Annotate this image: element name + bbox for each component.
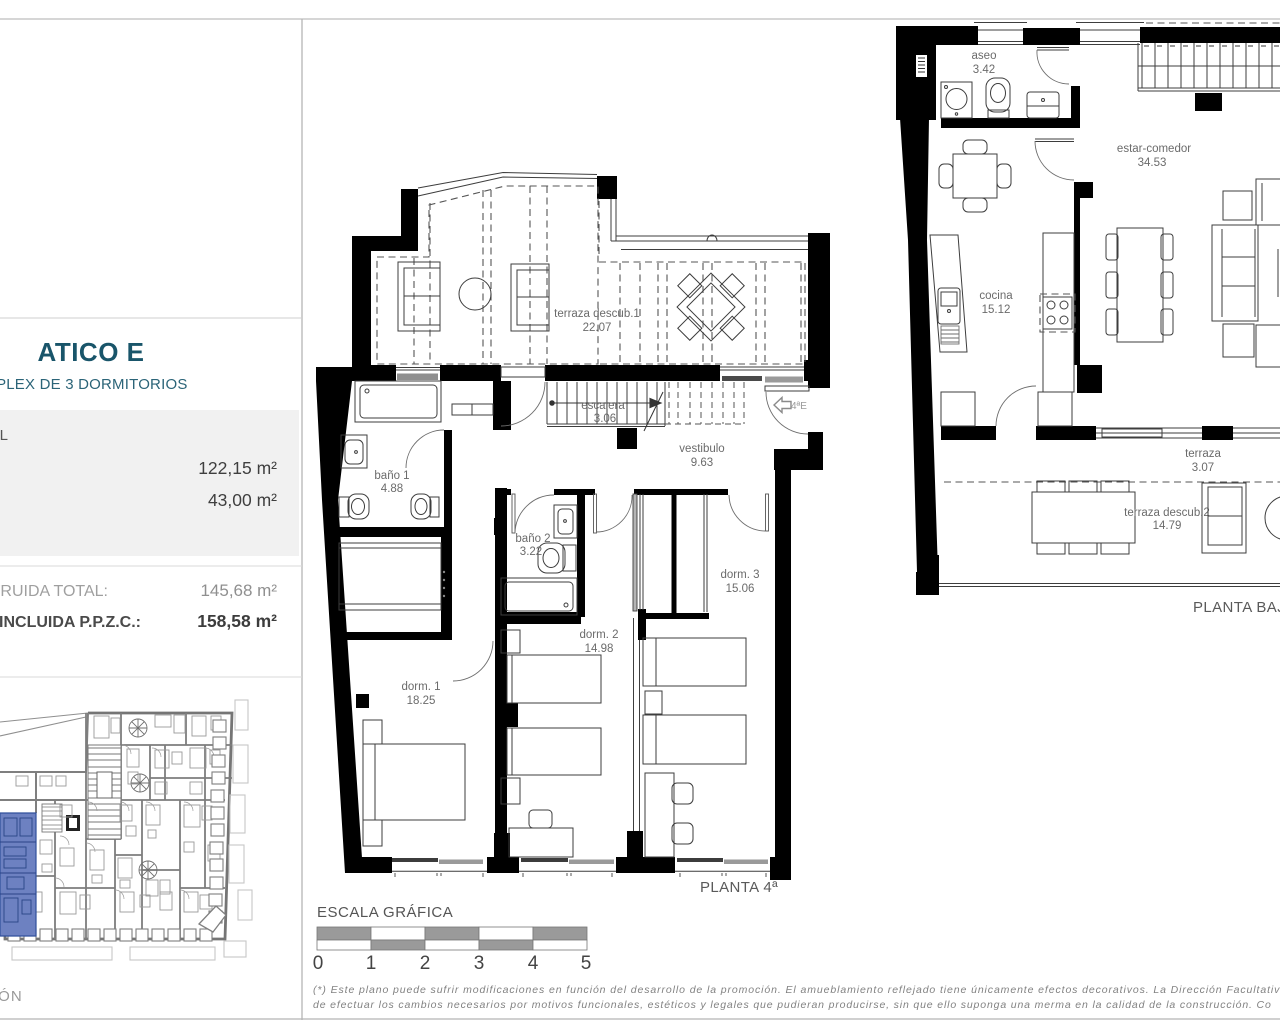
svg-text:baño 2: baño 2: [515, 533, 550, 545]
svg-text:3.07: 3.07: [1192, 462, 1214, 474]
svg-text:dorm. 3: dorm. 3: [721, 569, 760, 581]
svg-text:baño 1: baño 1: [374, 470, 409, 482]
svg-text:3: 3: [474, 953, 485, 974]
svg-text:3.42: 3.42: [973, 64, 995, 76]
svg-text:ESCALA GRÁFICA: ESCALA GRÁFICA: [317, 904, 453, 921]
svg-text:SUPERFICIE CONSTRUIDA TOTAL:: SUPERFICIE CONSTRUIDA TOTAL:: [0, 583, 108, 600]
svg-text:PLANTA 4ª: PLANTA 4ª: [700, 879, 778, 896]
svg-text:14.98: 14.98: [585, 643, 614, 655]
svg-text:terraza descub.2: terraza descub.2: [1124, 507, 1210, 519]
svg-text:vestibulo: vestibulo: [679, 443, 724, 455]
svg-text:43,00 m²: 43,00 m²: [208, 490, 277, 510]
svg-text:18.25: 18.25: [407, 695, 436, 707]
svg-text:145,68 m²: 145,68 m²: [200, 581, 277, 600]
svg-text:15.12: 15.12: [982, 304, 1011, 316]
svg-text:14.79: 14.79: [1153, 520, 1182, 532]
svg-text:(*) Este plano puede sufrir mo: (*) Este plano puede sufrir modificacion…: [313, 984, 1280, 996]
svg-text:122,15 m²: 122,15 m²: [198, 458, 277, 478]
svg-text:dorm. 2: dorm. 2: [580, 629, 619, 641]
svg-text:0: 0: [313, 953, 324, 974]
svg-text:158,58 m²: 158,58 m²: [197, 611, 277, 631]
svg-text:terraza descub.1: terraza descub.1: [554, 308, 640, 320]
svg-text:4: 4: [528, 953, 539, 974]
svg-text:34.53: 34.53: [1138, 157, 1167, 169]
svg-text:9.63: 9.63: [691, 457, 713, 469]
svg-text:22.07: 22.07: [583, 322, 612, 334]
svg-text:ATICO E: ATICO E: [37, 337, 144, 367]
svg-text:4.88: 4.88: [381, 483, 403, 495]
svg-text:CONSTRUIDA INCLUIDA P.P.Z.C.:: CONSTRUIDA INCLUIDA P.P.Z.C.:: [0, 614, 141, 631]
svg-text:PLANTA BAJA: PLANTA BAJA: [1193, 599, 1280, 616]
svg-text:aseo: aseo: [972, 50, 997, 62]
svg-text:estar-comedor: estar-comedor: [1117, 143, 1191, 155]
svg-text:cocina: cocina: [979, 290, 1013, 302]
svg-text:3.06: 3.06: [594, 413, 616, 425]
svg-text:DÚPLEX DE 3 DORMITORIOS: DÚPLEX DE 3 DORMITORIOS: [0, 376, 188, 393]
svg-text:SITUACIÓN: SITUACIÓN: [0, 988, 23, 1005]
svg-text:SUPERFICIE ÚTIL: SUPERFICIE ÚTIL: [0, 427, 8, 444]
svg-text:4ªE: 4ªE: [791, 401, 807, 412]
svg-text:5: 5: [581, 953, 592, 974]
svg-text:1: 1: [366, 953, 377, 974]
svg-text:15.06: 15.06: [726, 583, 755, 595]
svg-text:terraza: terraza: [1185, 448, 1221, 460]
svg-text:3.22: 3.22: [520, 546, 542, 558]
svg-text:2: 2: [420, 953, 431, 974]
svg-text:dorm. 1: dorm. 1: [402, 681, 441, 693]
svg-text:escalera: escalera: [581, 400, 625, 412]
svg-text:de efectuar los cambios necesa: de efectuar los cambios necesarios por m…: [313, 999, 1272, 1011]
